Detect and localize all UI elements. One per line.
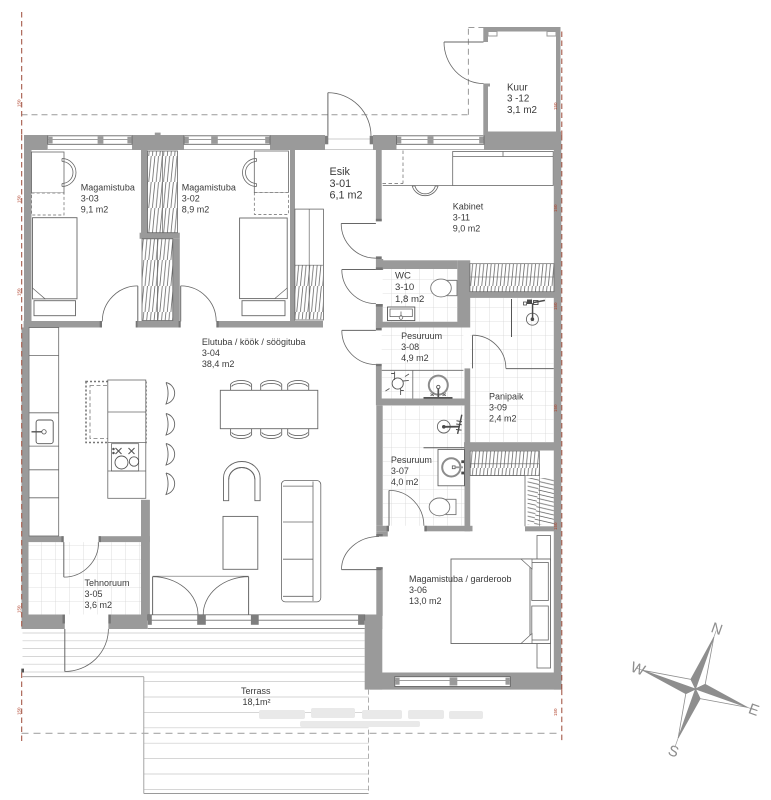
svg-text:150: 150 <box>553 522 558 530</box>
svg-text:150: 150 <box>553 204 558 212</box>
svg-text:Magamistuba: Magamistuba <box>81 183 135 193</box>
svg-text:18,1m²: 18,1m² <box>243 697 271 707</box>
svg-text:9,1 m2: 9,1 m2 <box>81 205 109 215</box>
svg-text:3-11: 3-11 <box>453 212 470 222</box>
svg-text:Tehnoruum: Tehnoruum <box>85 578 130 588</box>
svg-text:6,1 m2: 6,1 m2 <box>330 190 363 202</box>
svg-text:Esik: Esik <box>330 166 351 178</box>
svg-text:3-06: 3-06 <box>409 585 427 595</box>
svg-text:WC: WC <box>395 271 411 282</box>
svg-text:Kabinet: Kabinet <box>453 201 484 211</box>
svg-text:Magamistuba / garderoob: Magamistuba / garderoob <box>409 574 512 584</box>
svg-text:150: 150 <box>16 288 21 296</box>
svg-text:8,9 m2: 8,9 m2 <box>182 205 210 215</box>
svg-text:150: 150 <box>553 404 558 412</box>
svg-text:3-05: 3-05 <box>85 589 103 599</box>
svg-text:2,4 m2: 2,4 m2 <box>489 414 517 424</box>
svg-text:4,0 m2: 4,0 m2 <box>391 477 419 487</box>
svg-text:150: 150 <box>16 99 21 107</box>
svg-text:3-04: 3-04 <box>202 348 220 358</box>
svg-text:3 -12: 3 -12 <box>507 94 529 105</box>
svg-text:150: 150 <box>17 707 22 715</box>
svg-text:Magamistuba: Magamistuba <box>182 183 236 193</box>
svg-text:150: 150 <box>16 195 21 203</box>
svg-text:3-07: 3-07 <box>391 466 409 476</box>
svg-text:3-01: 3-01 <box>330 178 352 190</box>
svg-text:3-09: 3-09 <box>489 403 507 413</box>
svg-text:150: 150 <box>553 708 558 716</box>
svg-text:150: 150 <box>16 605 21 613</box>
svg-text:3-08: 3-08 <box>401 342 419 352</box>
svg-text:3-10: 3-10 <box>395 282 414 293</box>
svg-text:150: 150 <box>553 302 558 310</box>
svg-text:Panipaik: Panipaik <box>489 392 524 402</box>
svg-text:Elutuba / köök / söögituba: Elutuba / köök / söögituba <box>202 337 306 347</box>
svg-text:3-02: 3-02 <box>182 194 200 204</box>
svg-text:38,4 m2: 38,4 m2 <box>202 359 235 369</box>
svg-text:9,0 m2: 9,0 m2 <box>453 223 481 233</box>
svg-text:Kuur: Kuur <box>507 82 528 93</box>
svg-text:13,0 m2: 13,0 m2 <box>409 596 442 606</box>
svg-text:3,6 m2: 3,6 m2 <box>85 600 113 610</box>
svg-text:3,1 m2: 3,1 m2 <box>507 105 537 116</box>
svg-text:Pesuruum: Pesuruum <box>401 331 442 341</box>
svg-text:3-03: 3-03 <box>81 194 99 204</box>
svg-text:1,8 m2: 1,8 m2 <box>395 294 424 305</box>
svg-text:4,9 m2: 4,9 m2 <box>401 353 429 363</box>
svg-text:150: 150 <box>553 102 558 110</box>
svg-text:Pesuruum: Pesuruum <box>391 455 432 465</box>
svg-text:Terrass: Terrass <box>241 686 271 696</box>
